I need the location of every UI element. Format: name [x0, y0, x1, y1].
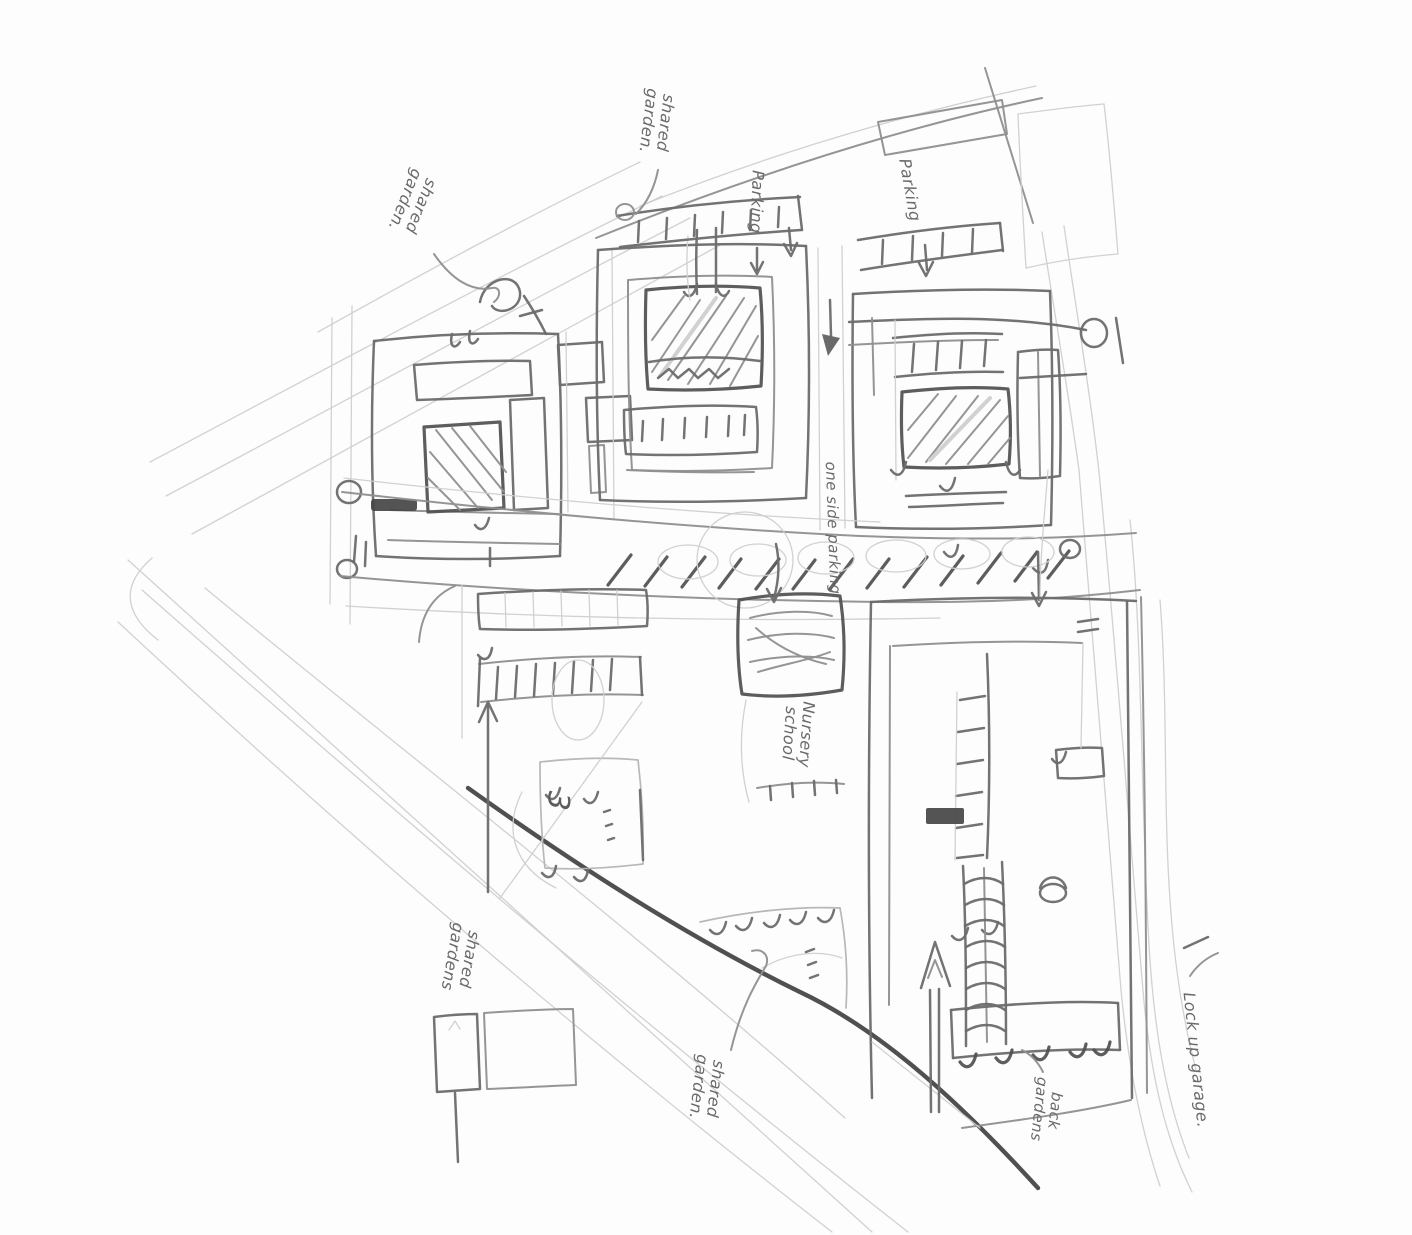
road-bottom-left [118, 558, 1038, 1232]
building-hatched-centre [645, 286, 762, 390]
sketch-canvas: shared garden. shared garden. Parking Pa… [0, 0, 1412, 1235]
annotation-storey-mark: 3 [540, 790, 574, 812]
annotation-line: 3 [540, 790, 574, 812]
annotation-line: one side parking [823, 461, 844, 594]
block-lower-right [869, 597, 1147, 1128]
annotation-parking-left: Parking [747, 170, 766, 234]
annotation-back-gardens: back gardens [1028, 1076, 1067, 1143]
terrace-row-bottom-right [951, 1002, 1120, 1067]
building-hatched-left [424, 422, 506, 512]
annotation-line: Parking [747, 170, 766, 234]
annotation-line: school [779, 706, 800, 761]
terrace-rows-left [419, 585, 648, 740]
annotation-nursery-school: Nursery school [778, 700, 817, 769]
parking-strip-right [858, 223, 1003, 276]
mid-gap-structures [558, 250, 632, 520]
annotation-shared-garden-top-mid: shared garden. [636, 88, 678, 157]
annotation-shared-garden-bottom-mid: shared garden. [686, 1054, 728, 1123]
annotation-one-side-parking: one side parking [823, 461, 844, 594]
legend-shared-gardens [434, 1009, 576, 1162]
building-hatched-right [891, 388, 1020, 491]
parking-strip-centre [616, 196, 802, 274]
lockup-garage-row [963, 862, 1006, 1046]
block-right [849, 290, 1107, 573]
